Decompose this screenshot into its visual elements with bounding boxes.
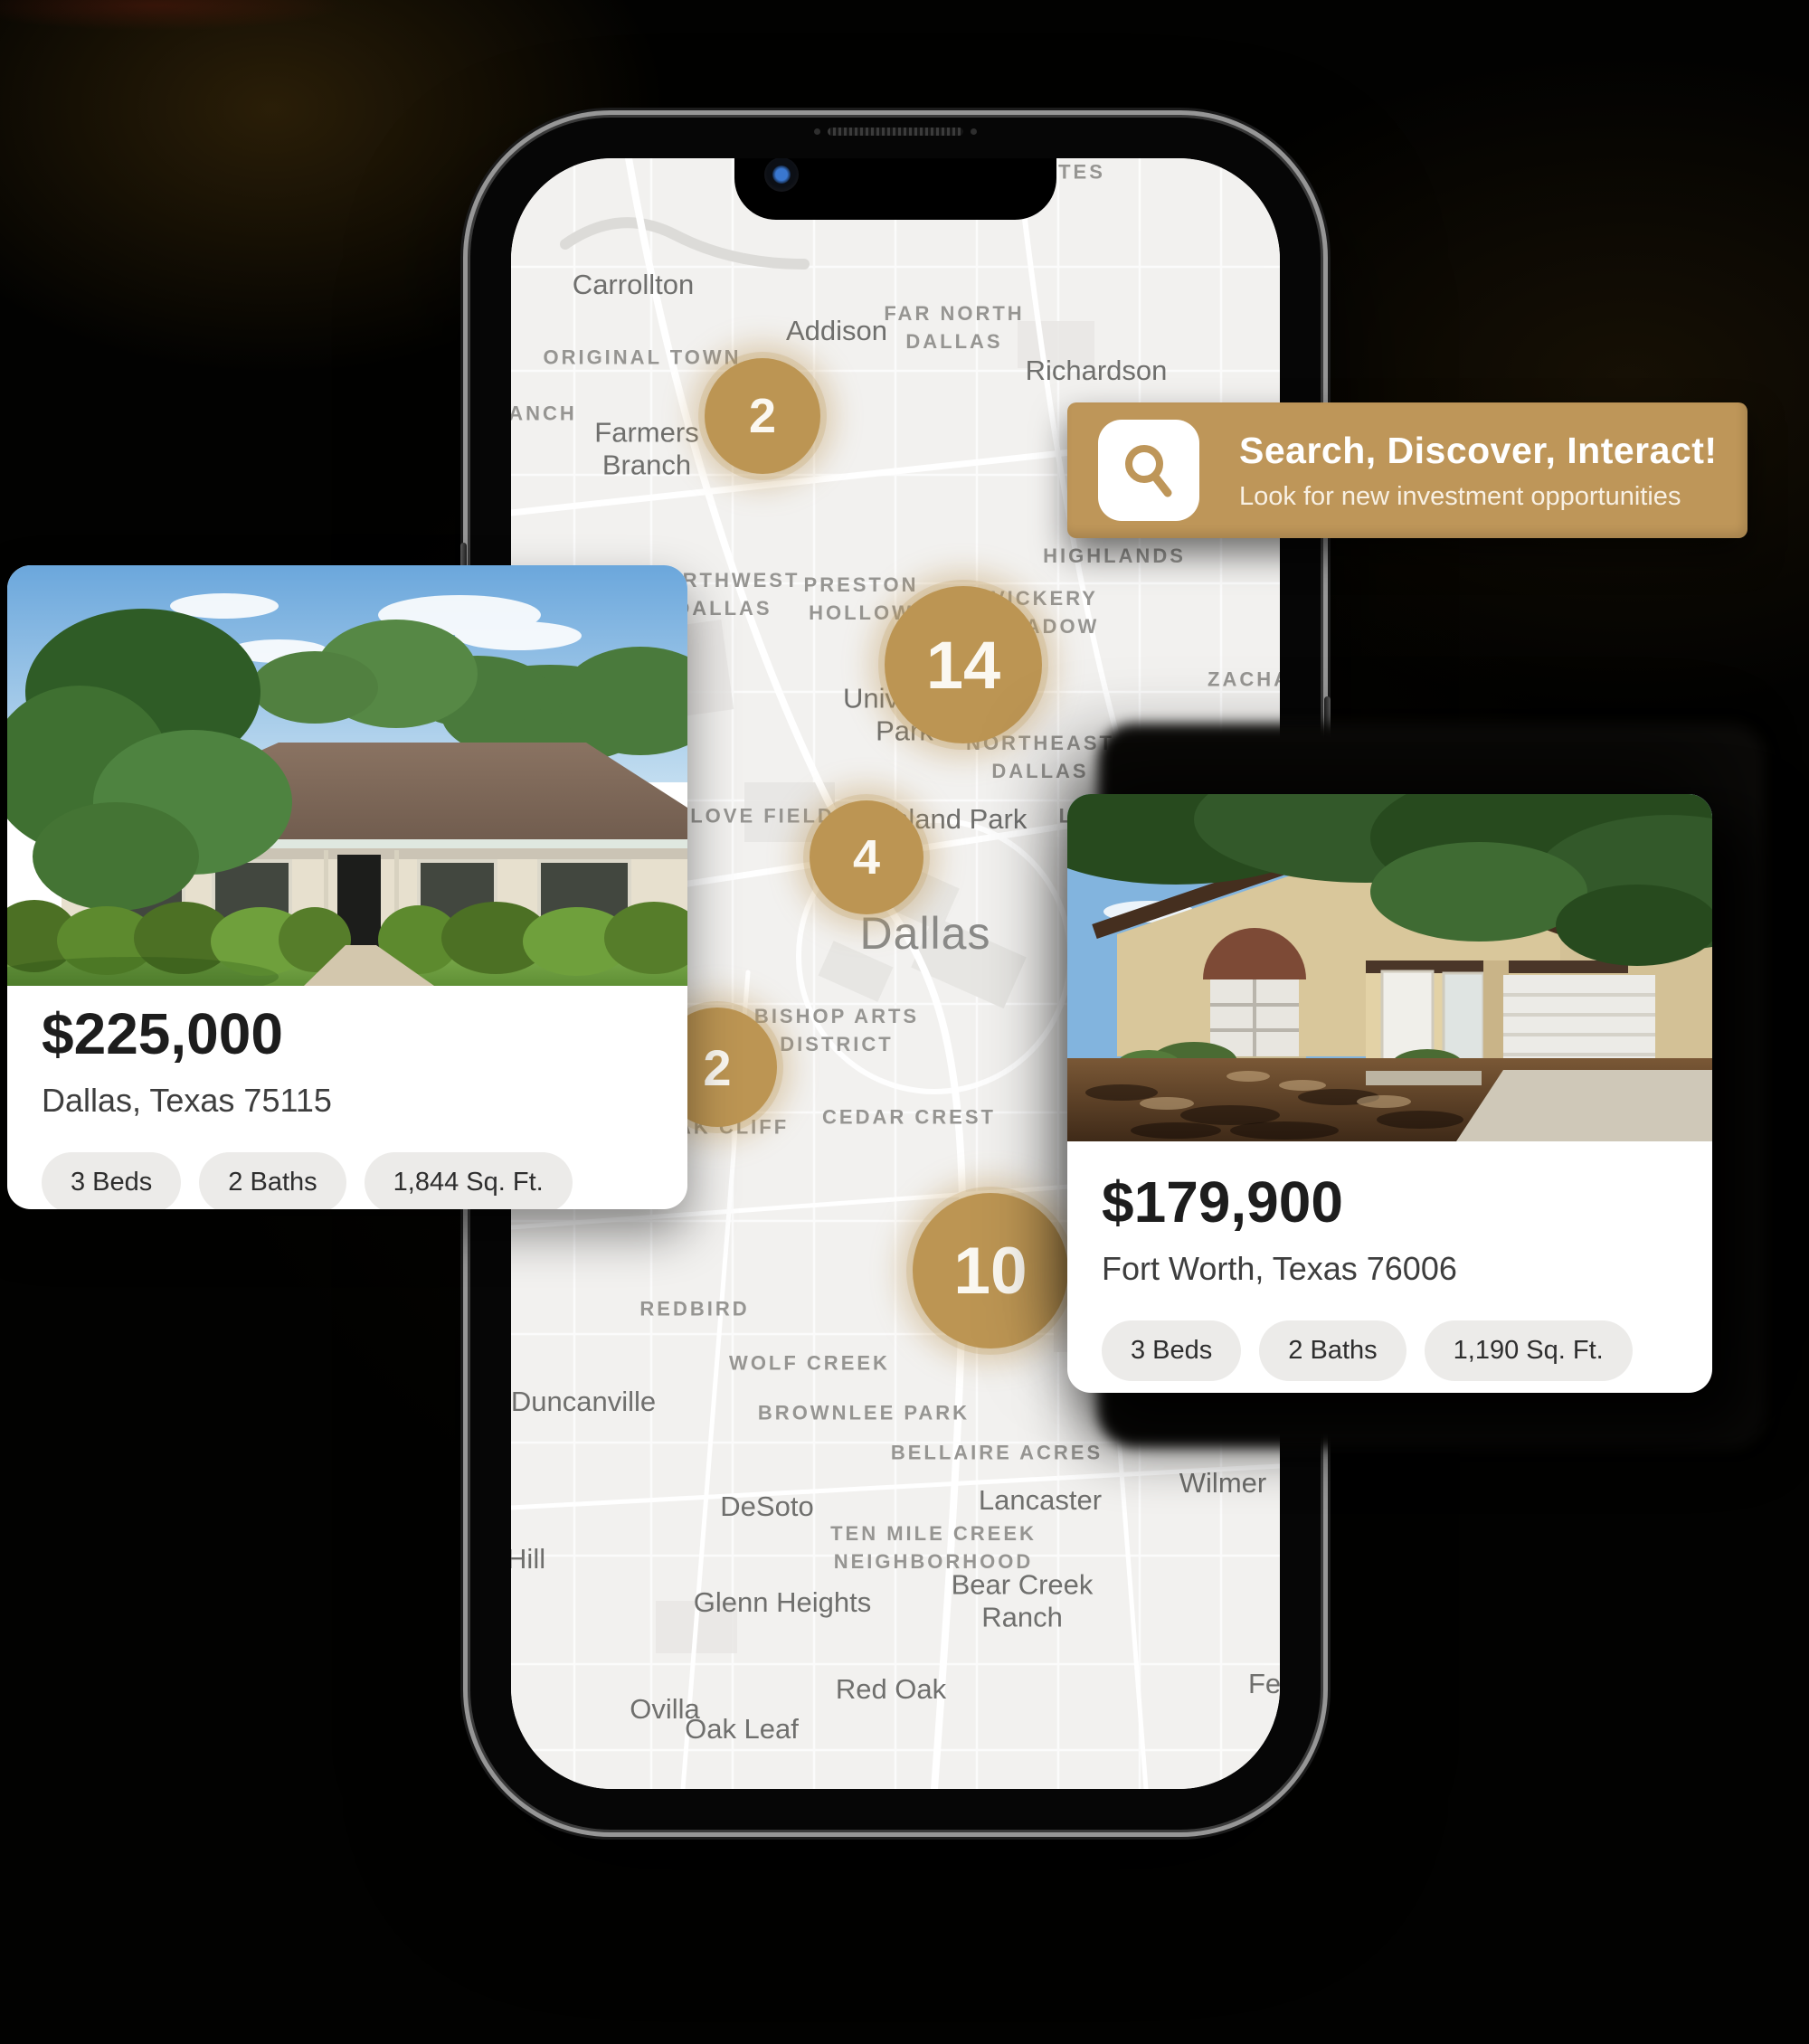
sqft-chip: 1,844 Sq. Ft. [365, 1152, 573, 1209]
location: Fort Worth, Texas 76006 [1102, 1250, 1678, 1288]
property-card-dallas[interactable]: $225,000 Dallas, Texas 75115 3 Beds 2 Ba… [7, 565, 687, 1209]
cluster-marker[interactable]: 2 [705, 358, 820, 474]
banner-title: Search, Discover, Interact! [1239, 430, 1718, 472]
search-icon [1121, 442, 1177, 498]
marketing-composite: TESCarrolltonAddisonFAR NORTHDALLASORIGI… [0, 0, 1809, 2044]
cluster-marker[interactable]: 4 [810, 800, 923, 914]
property-photo [1067, 794, 1712, 1141]
card-info: $179,900 Fort Worth, Texas 76006 3 Beds … [1067, 1141, 1712, 1381]
baths-chip: 2 Baths [1259, 1320, 1406, 1381]
baths-chip: 2 Baths [199, 1152, 346, 1209]
speaker-grille [828, 128, 963, 136]
cluster-marker[interactable]: 10 [913, 1193, 1068, 1348]
banner-subtitle: Look for new investment opportunities [1239, 482, 1718, 512]
price: $179,900 [1102, 1169, 1678, 1235]
beds-chip: 3 Beds [1102, 1320, 1241, 1381]
location: Dallas, Texas 75115 [42, 1082, 653, 1120]
property-card-fort-worth[interactable]: $179,900 Fort Worth, Texas 76006 3 Beds … [1067, 794, 1712, 1393]
front-camera [764, 158, 799, 192]
banner-text: Search, Discover, Interact! Look for new… [1239, 430, 1718, 512]
property-photo [7, 565, 687, 986]
sqft-chip: 1,190 Sq. Ft. [1425, 1320, 1633, 1381]
notch [734, 158, 1056, 220]
search-icon-tile [1098, 420, 1199, 521]
beds-chip: 3 Beds [42, 1152, 181, 1209]
price: $225,000 [42, 1000, 653, 1067]
chip-row: 3 Beds 2 Baths 1,844 Sq. Ft. [42, 1152, 653, 1209]
card-info: $225,000 Dallas, Texas 75115 3 Beds 2 Ba… [7, 986, 687, 1209]
chip-row: 3 Beds 2 Baths 1,190 Sq. Ft. [1102, 1320, 1678, 1381]
cluster-marker[interactable]: 14 [885, 586, 1042, 743]
search-banner[interactable]: Search, Discover, Interact! Look for new… [1067, 402, 1747, 538]
